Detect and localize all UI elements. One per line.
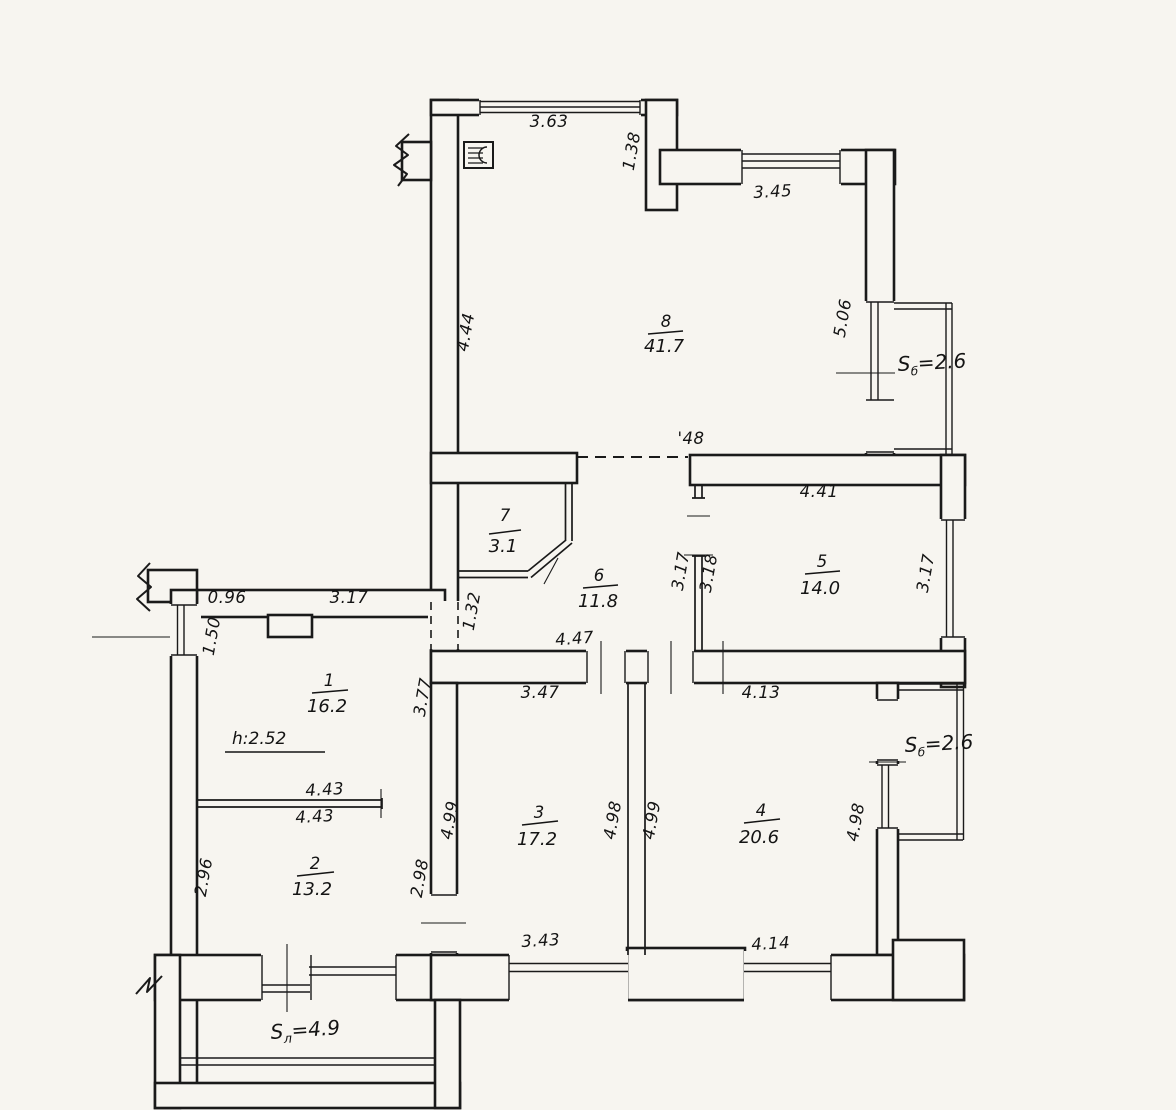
room-1-area: 16.2 — [307, 696, 347, 717]
room-3-area: 17.2 — [517, 829, 557, 850]
dim-room1-left: 1.50 — [199, 615, 224, 656]
dim-room5-left: 3.18 — [696, 552, 721, 593]
dim-room3-bottom: 3.43 — [521, 930, 561, 951]
room-6-number: 6 — [594, 566, 605, 585]
ceiling-height-note: h:2.52 — [232, 729, 286, 749]
room-8-number: 8 — [661, 312, 672, 331]
dim-room3-right: 4.98 — [600, 799, 625, 840]
dim-room8-right: 5.06 — [830, 297, 855, 338]
room-5-area: 14.0 — [800, 578, 840, 599]
balcony-area-top-right: Sб=2.6 — [897, 348, 967, 379]
room-1-number: 1 — [324, 671, 335, 690]
room-5-number: 5 — [817, 552, 828, 571]
dim-room3-top: 3.47 — [521, 683, 560, 702]
dim-hall-passage: 1.32 — [459, 590, 484, 631]
dim-room1-top-b: 3.17 — [330, 588, 369, 607]
room-2-area: 13.2 — [292, 879, 332, 900]
dim-partition12-top: 4.43 — [305, 779, 345, 800]
dim-partition12-bottom: 4.43 — [295, 806, 335, 827]
room-6-area: 11.8 — [578, 591, 618, 612]
room-8-area: 41.7 — [644, 336, 685, 357]
windows-doors-layer — [92, 100, 965, 1012]
dim-room1-top-a: 0.96 — [208, 588, 247, 607]
dim-room4-bottom: 4.14 — [751, 933, 791, 954]
dim-room5-top: 4.41 — [800, 482, 839, 501]
balcony-area-bottom-left: Sл=4.9 — [270, 1015, 341, 1048]
dim-top-window: 3.63 — [530, 112, 569, 131]
floor-plan-drawing: 8 41.7 7 3.1 6 11.8 5 14.0 1 16.2 2 13.2… — [0, 0, 1176, 1110]
dim-archway: '48 — [677, 429, 704, 448]
dim-room4-top: 4.13 — [742, 683, 781, 702]
floor-plan: 8 41.7 7 3.1 6 11.8 5 14.0 1 16.2 2 13.2… — [0, 0, 1176, 1110]
dim-top-right-window: 3.45 — [753, 181, 793, 202]
room-7-area: 3.1 — [489, 536, 518, 557]
dim-room4-left: 4.99 — [639, 799, 664, 840]
room-7-number: 7 — [500, 506, 511, 525]
room-4-area: 20.6 — [739, 827, 779, 848]
openings-layer — [167, 98, 969, 1004]
vent-shaft-icon — [464, 142, 493, 168]
dim-room2-right: 2.98 — [407, 857, 432, 898]
dim-top-right-inset: 1.38 — [619, 130, 644, 171]
dim-room6-right: 3.17 — [668, 550, 693, 591]
dim-room5-right: 3.17 — [913, 552, 938, 593]
dim-room6-bottom: 4.47 — [555, 628, 595, 650]
dim-room4-right: 4.98 — [843, 801, 868, 842]
room-2-number: 2 — [310, 854, 321, 873]
room-3-number: 3 — [534, 803, 545, 822]
room-4-number: 4 — [756, 801, 767, 820]
